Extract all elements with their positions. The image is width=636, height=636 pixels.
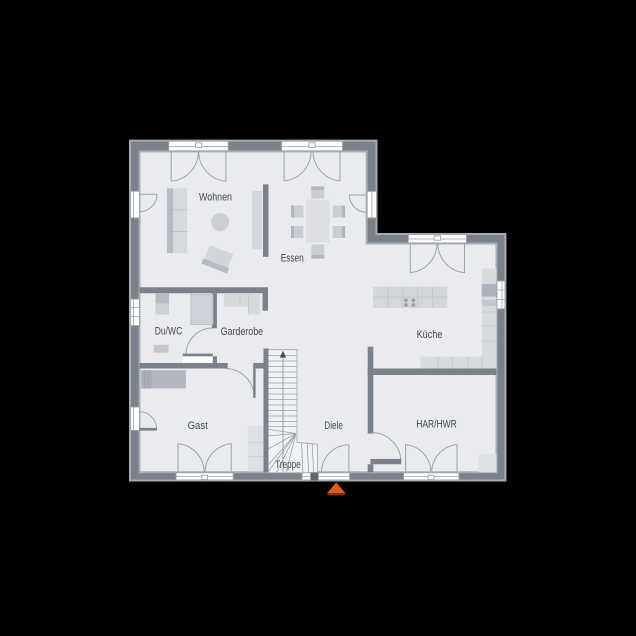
svg-text:Essen: Essen	[281, 253, 304, 265]
svg-text:Küche: Küche	[417, 329, 443, 341]
svg-text:Gast: Gast	[188, 420, 208, 432]
svg-text:Treppe: Treppe	[275, 459, 300, 471]
svg-text:Du/WC: Du/WC	[155, 326, 183, 338]
svg-text:Garderobe: Garderobe	[221, 326, 264, 338]
svg-text:HAR/HWR: HAR/HWR	[416, 418, 457, 430]
svg-text:Wohnen: Wohnen	[199, 192, 232, 204]
svg-text:Diele: Diele	[324, 420, 343, 432]
